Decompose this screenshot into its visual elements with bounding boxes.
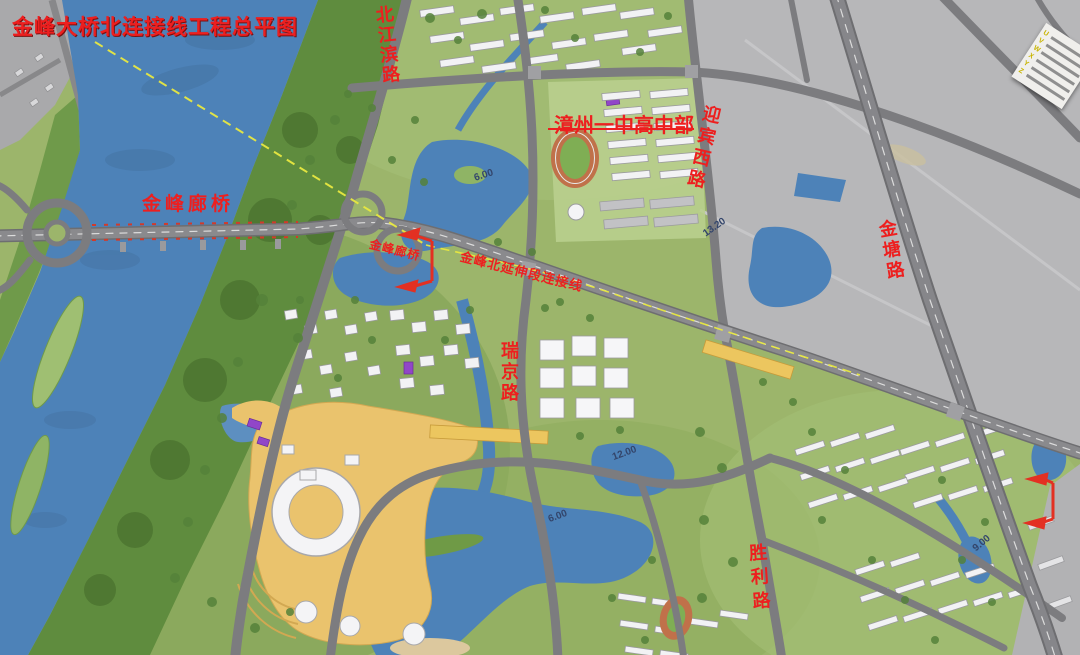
label-shengli-road: 胜利路	[748, 542, 771, 615]
master-plan-map: 金峰大桥北连接线工程总平图 漳州一中高中部 北江滨路 迎宾西路 金峰廊桥 金峰廊…	[0, 0, 1080, 655]
label-school: 漳州一中高中部	[554, 116, 694, 136]
map-title: 金峰大桥北连接线工程总平图	[12, 17, 298, 38]
label-jinfeng-corridor-bridge: 金峰廊桥	[142, 195, 234, 214]
label-ruijing-road: 瑞京路	[500, 341, 518, 404]
map-canvas	[0, 0, 1080, 655]
